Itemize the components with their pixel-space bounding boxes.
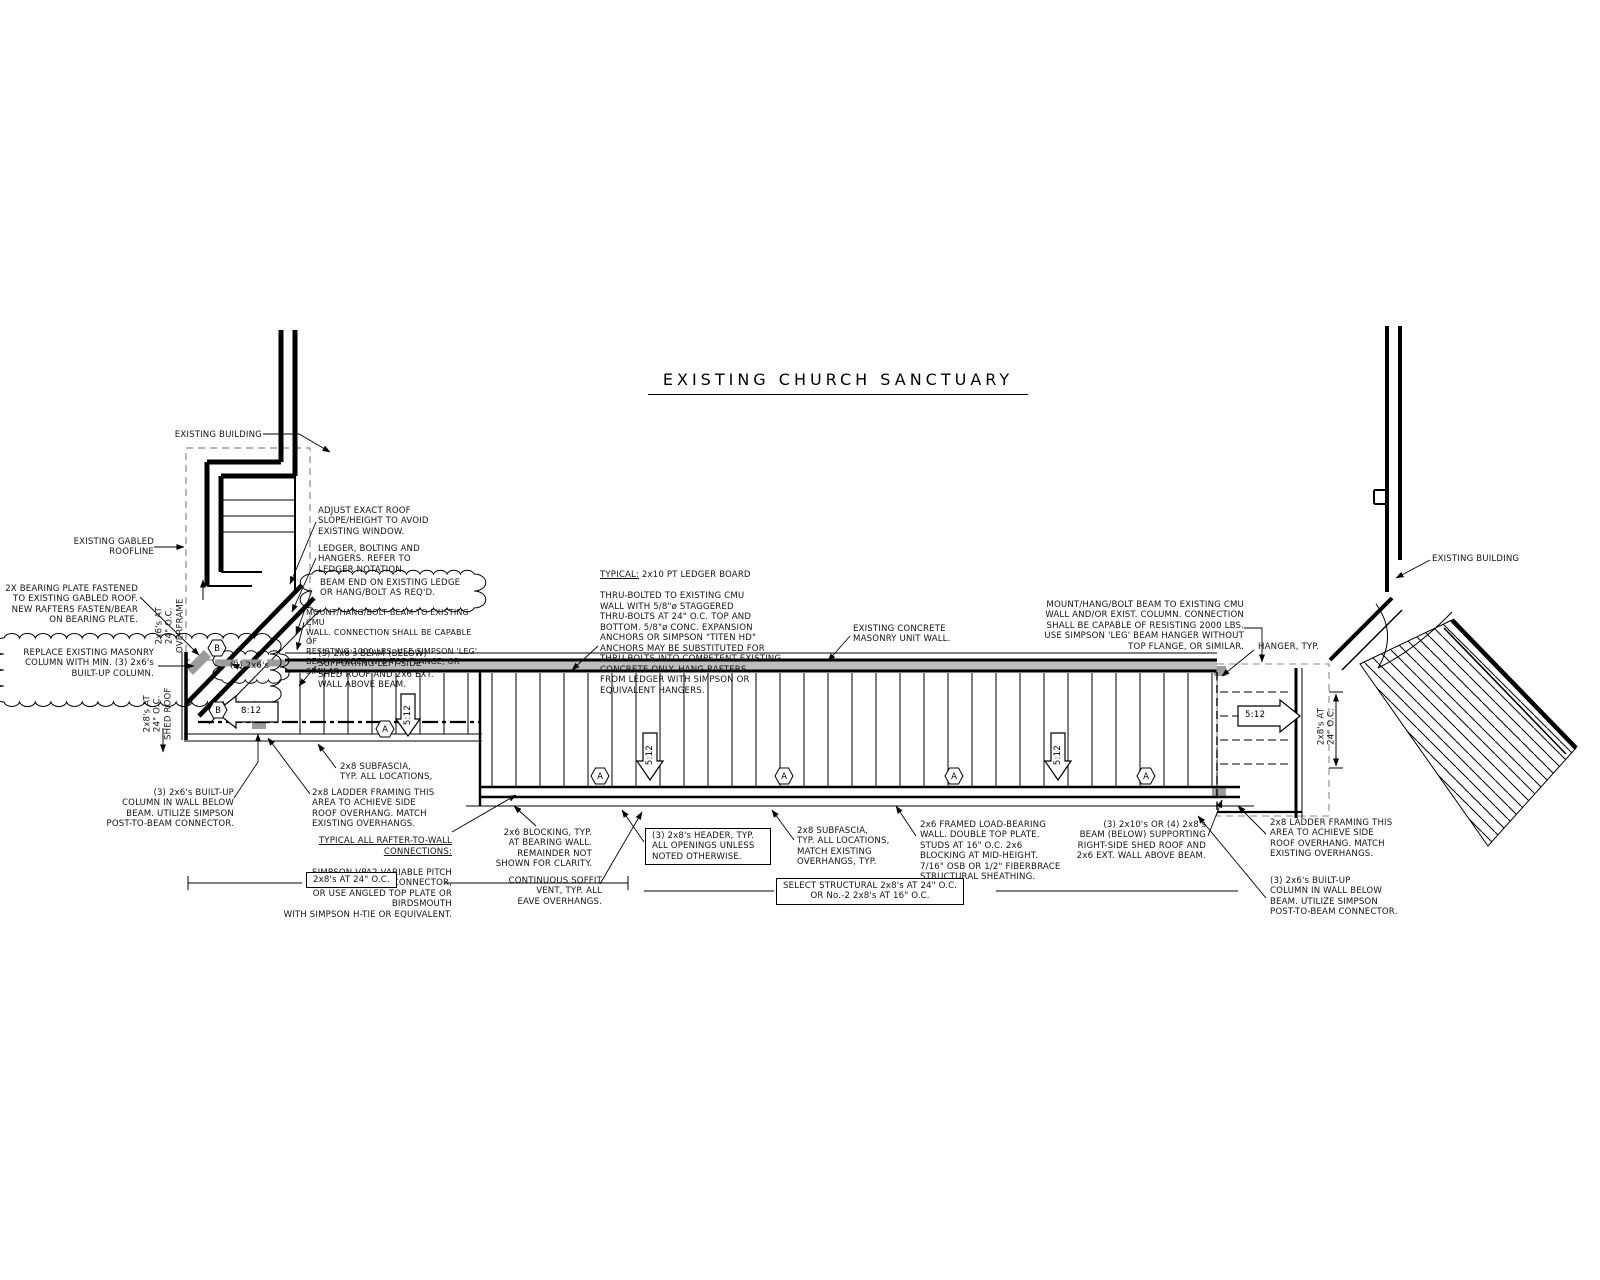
note-beam-end-ledge: BEAM END ON EXISTING LEDGE OR HANG/BOLT …: [320, 578, 470, 599]
framing-plan-drawing: B B A A A A A: [0, 0, 1600, 1280]
note-header-typ: (3) 2x8's HEADER, TYP. ALL OPENINGS UNLE…: [645, 828, 771, 865]
note-ladder-framing-left: 2x8 LADDER FRAMING THIS AREA TO ACHIEVE …: [312, 788, 446, 830]
bearing-wall: [466, 672, 1254, 806]
drawing-linework: B B A A A A A: [0, 0, 1600, 1280]
right-ladder-bay: [1217, 664, 1329, 818]
tag-b-1: B: [214, 644, 220, 654]
drawing-title: EXISTING CHURCH SANCTUARY: [648, 370, 1028, 395]
note-mount-beam-2000: MOUNT/HANG/BOLT BEAM TO EXISTING CMU WAL…: [1010, 600, 1244, 652]
note-builtup-column-right: (3) 2x6's BUILT-UP COLUMN IN WALL BELOW …: [1270, 876, 1404, 918]
slope-right-label: 5:12: [1245, 710, 1265, 720]
note-framed-wall: 2x6 FRAMED LOAD-BEARING WALL. DOUBLE TOP…: [920, 820, 1072, 883]
note-existing-gabled-roofline: EXISTING GABLED ROOFLINE: [40, 537, 154, 558]
note-hanger-typ: HANGER, TYP.: [1258, 642, 1338, 652]
note-cmu-wall: EXISTING CONCRETE MASONRY UNIT WALL.: [853, 624, 965, 645]
dim-shed-right: 2x8's AT 24" O.C.: [1317, 695, 1338, 757]
note-bearing-plate: 2X BEARING PLATE FASTENED TO EXISTING GA…: [2, 584, 138, 626]
note-builtup-column-left: (3) 2x6's BUILT-UP COLUMN IN WALL BELOW …: [100, 788, 234, 830]
tag-a-4: A: [951, 772, 957, 782]
note-existing-building-left: EXISTING BUILDING: [140, 430, 262, 440]
dim-shed-left: 2x8's AT 24" O.C. SHED ROOF: [142, 682, 173, 746]
tag-a-2: A: [597, 772, 603, 782]
note-beam-below-left: (3) 2x8's BEAM (BELOW) SUPPORTING LEFT-S…: [318, 649, 448, 691]
tag-a-5: A: [1143, 772, 1149, 782]
note-adjust-roof: ADJUST EXACT ROOF SLOPE/HEIGHT TO AVOID …: [318, 506, 442, 537]
note-ledger-line1: 2x10 PT LEDGER BOARD: [639, 570, 751, 580]
note-subfascia-main: 2x8 SUBFASCIA, TYP. ALL LOCATIONS, MATCH…: [797, 826, 909, 868]
note-two-2x6s: (2) 2x6's: [230, 661, 290, 671]
note-ledger-body: THRU-BOLTED TO EXISTING CMU WALL WITH 5/…: [600, 591, 796, 696]
note-ledger-heading: TYPICAL:: [600, 570, 639, 580]
slope-left-label: 8:12: [241, 706, 261, 716]
note-soffit-vent: CONTINUOUS SOFFIT VENT, TYP. ALL EAVE OV…: [500, 876, 602, 907]
tag-a-1: A: [382, 725, 388, 735]
note-blocking: 2x6 BLOCKING, TYP. AT BEARING WALL. REMA…: [478, 828, 592, 870]
note-ladder-framing-right: 2x8 LADDER FRAMING THIS AREA TO ACHIEVE …: [1270, 818, 1404, 860]
slope-main-2-label: 5:12: [1053, 738, 1063, 772]
dim-rafters-box: 2x8's AT 24" O.C.: [306, 872, 397, 888]
left-existing-building: [186, 330, 310, 660]
note-ledger: TYPICAL: 2x10 PT LEDGER BOARD THRU-BOLTE…: [600, 560, 796, 707]
tag-a-3: A: [781, 772, 787, 782]
tag-b-2: B: [215, 706, 221, 716]
dim-overframe: 2x6's AT 24" O.C. OVERFRAME: [154, 594, 185, 658]
note-subfascia-left: 2x8 SUBFASCIA, TYP. ALL LOCATIONS,: [340, 762, 450, 783]
note-existing-building-right: EXISTING BUILDING: [1432, 554, 1544, 564]
note-beam-below-right: (3) 2x10's OR (4) 2x8's BEAM (BELOW) SUP…: [1054, 820, 1206, 862]
note-ledger-bolting: LEDGER, BOLTING AND HANGERS. REFER TO LE…: [318, 544, 442, 575]
right-existing-building: [1330, 326, 1576, 846]
note-replace-masonry-column: REPLACE EXISTING MASONRY COLUMN WITH MIN…: [14, 648, 154, 679]
dim-select-structural-box: SELECT STRUCTURAL 2x8's AT 24" O.C. OR N…: [776, 878, 964, 905]
note-rafter-to-wall-heading: TYPICAL ALL RAFTER-TO-WALL CONNECTIONS:: [262, 836, 452, 857]
slope-shed-left-label: 5:12: [403, 698, 413, 732]
slope-main-1-label: 5:12: [645, 738, 655, 772]
left-shed-eave: [184, 722, 482, 741]
